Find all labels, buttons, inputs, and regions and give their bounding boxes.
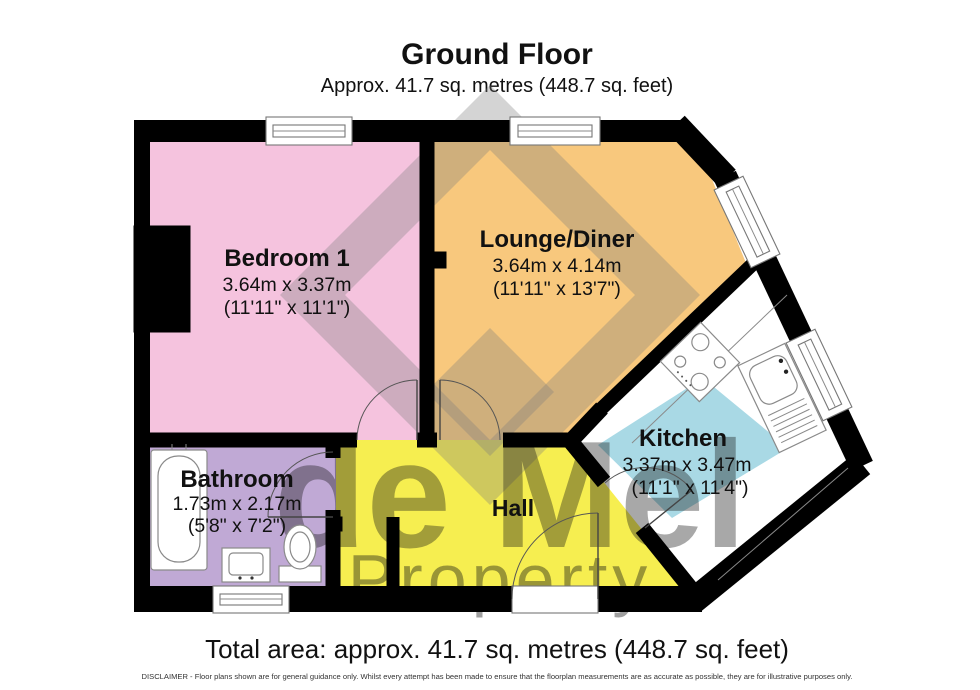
- bathroom-label: Bathroom: [180, 466, 293, 493]
- wall-notch: [434, 252, 446, 268]
- bathroom-window: [213, 586, 289, 613]
- kitchen-metric: 3.37m x 3.47m: [623, 454, 752, 476]
- bedroom-window: [266, 117, 352, 145]
- page-title: Ground Floor: [401, 38, 593, 71]
- kitchen-label: Kitchen: [639, 425, 727, 452]
- lounge-label: Lounge/Diner: [480, 226, 635, 253]
- floorplan-page: Ground Floor Approx. 41.7 sq. metres (44…: [0, 0, 980, 690]
- bathroom-metric: 1.73m x 2.17m: [173, 493, 302, 515]
- front-door-threshold: [512, 586, 598, 613]
- hall-label: Hall: [492, 495, 534, 521]
- floorplan-svg: Ground Floor Approx. 41.7 sq. metres (44…: [0, 0, 980, 690]
- kitchen-imperial: (11'1" x 11'4"): [631, 477, 748, 499]
- bedroom-metric: 3.64m x 3.37m: [223, 274, 352, 296]
- bathroom-imperial: (5'8" x 7'2"): [188, 515, 286, 537]
- bedroom-label: Bedroom 1: [224, 245, 349, 272]
- lounge-imperial: (11'11" x 13'7"): [493, 278, 621, 300]
- total-area: Total area: approx. 41.7 sq. metres (448…: [205, 634, 789, 664]
- chimney-breast: [134, 226, 190, 332]
- lounge-window: [510, 117, 600, 145]
- disclaimer: DISCLAIMER - Floor plans shown are for g…: [142, 672, 853, 681]
- wall-hall-stub: [326, 517, 342, 531]
- bathroom-sink: [222, 548, 270, 582]
- lounge-metric: 3.64m x 4.14m: [493, 255, 622, 277]
- bedroom-imperial: (11'11" x 11'1"): [224, 297, 350, 319]
